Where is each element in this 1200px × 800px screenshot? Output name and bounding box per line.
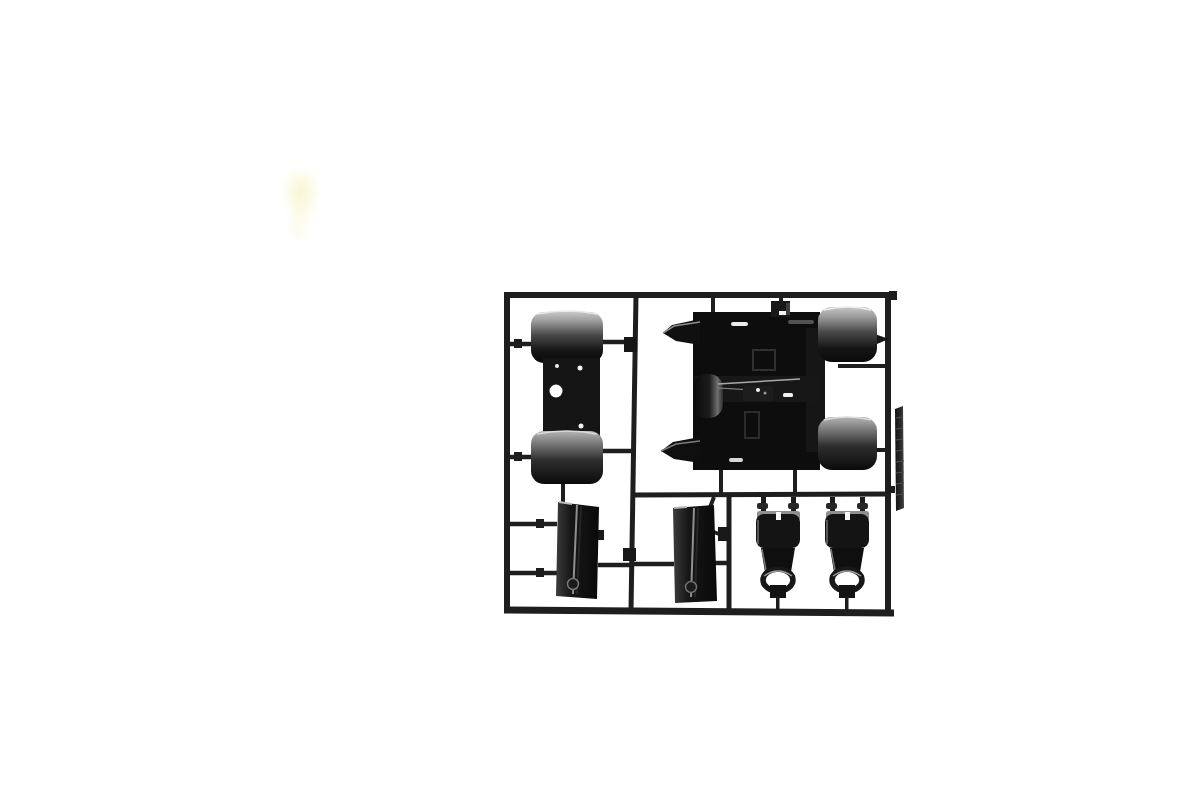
gate-tab [624, 337, 637, 352]
mounting-hole-large [550, 385, 563, 398]
linkage-highlight [764, 392, 767, 395]
prong-clip [757, 503, 768, 509]
bracket-edge [786, 303, 790, 315]
fender-right-bottom [818, 417, 877, 470]
bracket-slot [779, 311, 786, 315]
gate-tab [718, 527, 730, 541]
buckle-block [770, 585, 786, 598]
edge-highlight [729, 458, 743, 462]
sprue-photo: Sprue runner frame with dividers Connect… [0, 0, 1200, 800]
frame-bottom-rail [504, 610, 894, 613]
seat-belt-buckle-left-part: Seat-belt buckle part with D-ring (left) [756, 497, 800, 610]
gate-nub [514, 339, 522, 348]
panel-corner-highlight [674, 507, 687, 508]
mounting-hole-small [579, 424, 584, 429]
gate-nub [536, 568, 544, 577]
product-photo: Sprue runner frame with dividers Connect… [0, 0, 1200, 800]
gate-nub [536, 519, 544, 528]
fender-bottom [531, 431, 603, 484]
fender-top [531, 312, 603, 363]
seat-belt-buckle-right-part: Seat-belt buckle part with D-ring (right… [825, 497, 869, 611]
panel-boss [568, 579, 579, 590]
fender-right-top [818, 307, 877, 362]
prong-clip [826, 503, 837, 509]
edge-highlight [788, 320, 814, 324]
mounting-hole-small [578, 366, 583, 371]
cab-floor-part: Cab floor assembly with two rounded fend… [661, 307, 877, 470]
buckle-block [839, 585, 855, 598]
tread-strip-part: Narrow textured strip outside right rail [895, 406, 904, 511]
mounting-plate [543, 358, 600, 436]
edge-highlight [731, 322, 748, 326]
buckle-notch [845, 512, 850, 520]
side-wing-bottom [661, 437, 700, 463]
gate-nub [514, 452, 522, 461]
prong-clip [857, 503, 868, 509]
mounting-hole-small [555, 364, 559, 368]
gate-nub [886, 486, 895, 493]
cylinder-bulge [693, 374, 723, 418]
frame-horizontal-divider [633, 494, 888, 495]
buckle-notch [776, 512, 781, 520]
door-panel-middle-part: Flat door panel with center ridge and bo… [673, 505, 717, 603]
gate-tab [623, 548, 636, 561]
buckle-stem [845, 597, 849, 611]
buckle-stem [776, 597, 780, 610]
frame-corner-nub [889, 291, 897, 300]
linkage-highlight [783, 393, 793, 397]
panel-boss [686, 582, 697, 593]
prong-clip [788, 503, 799, 509]
linkage-highlight [756, 388, 760, 392]
fender-unit-part: Twin rounded fenders joined by a drilled… [531, 311, 603, 484]
small-bracket-part: Small slotted bracket on top runner [771, 301, 790, 317]
door-panel-left-part: Flat door panel with center ridge and bo… [556, 502, 599, 599]
